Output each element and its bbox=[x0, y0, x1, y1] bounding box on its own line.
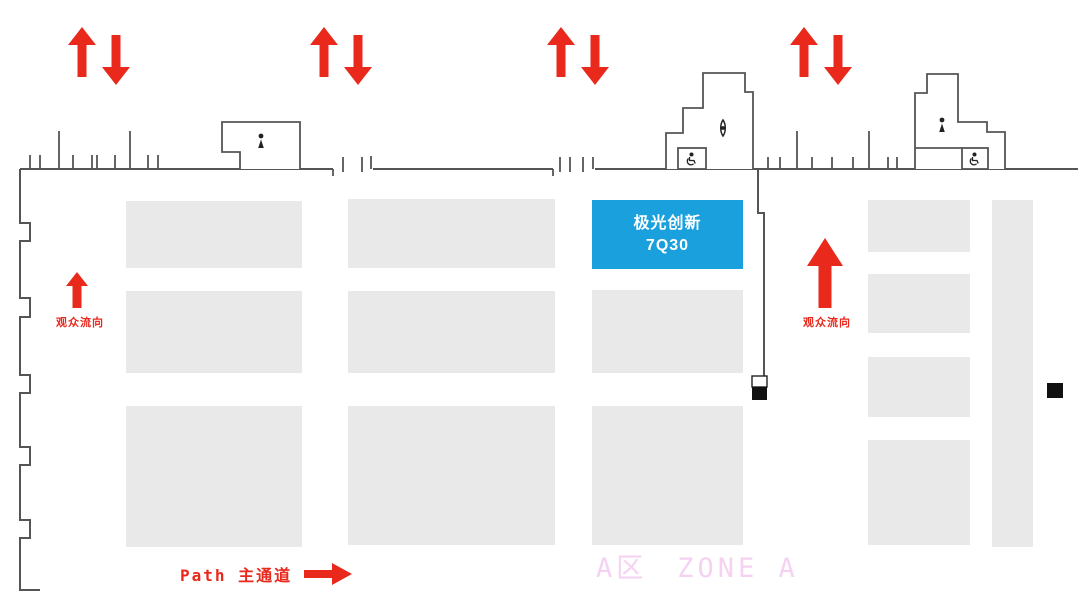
zone-en-label: ZONE A bbox=[677, 553, 799, 584]
booth-number: 7Q30 bbox=[646, 235, 689, 257]
zone-cn-label: A区 bbox=[596, 553, 647, 584]
booth-name: 极光创新 bbox=[633, 213, 701, 235]
pillars bbox=[752, 383, 1063, 400]
divider-wall bbox=[758, 170, 764, 377]
path-label-text: Path 主通道 bbox=[180, 562, 292, 586]
zone-watermark: A区ZONE A bbox=[596, 546, 799, 585]
facility-icons bbox=[258, 118, 978, 165]
highlighted-booth: 极光创新 7Q30 bbox=[592, 200, 743, 269]
pillar-square bbox=[752, 387, 767, 400]
main-path-label: Path 主通道 bbox=[180, 562, 352, 586]
service-box bbox=[752, 376, 767, 387]
facility-box bbox=[962, 148, 988, 169]
left-wall bbox=[20, 169, 40, 590]
exhibition-floorplan: 极光创新 7Q30 观众流向 观众流向 Path 主通道 A区ZONE A bbox=[0, 0, 1080, 607]
right-arrow-icon bbox=[304, 563, 352, 585]
entrance-structure-right bbox=[915, 74, 1005, 169]
facility-box bbox=[678, 148, 706, 169]
pillar-square bbox=[1047, 383, 1063, 398]
floorplan-walls bbox=[0, 0, 1080, 607]
wall-lines bbox=[20, 169, 1078, 590]
